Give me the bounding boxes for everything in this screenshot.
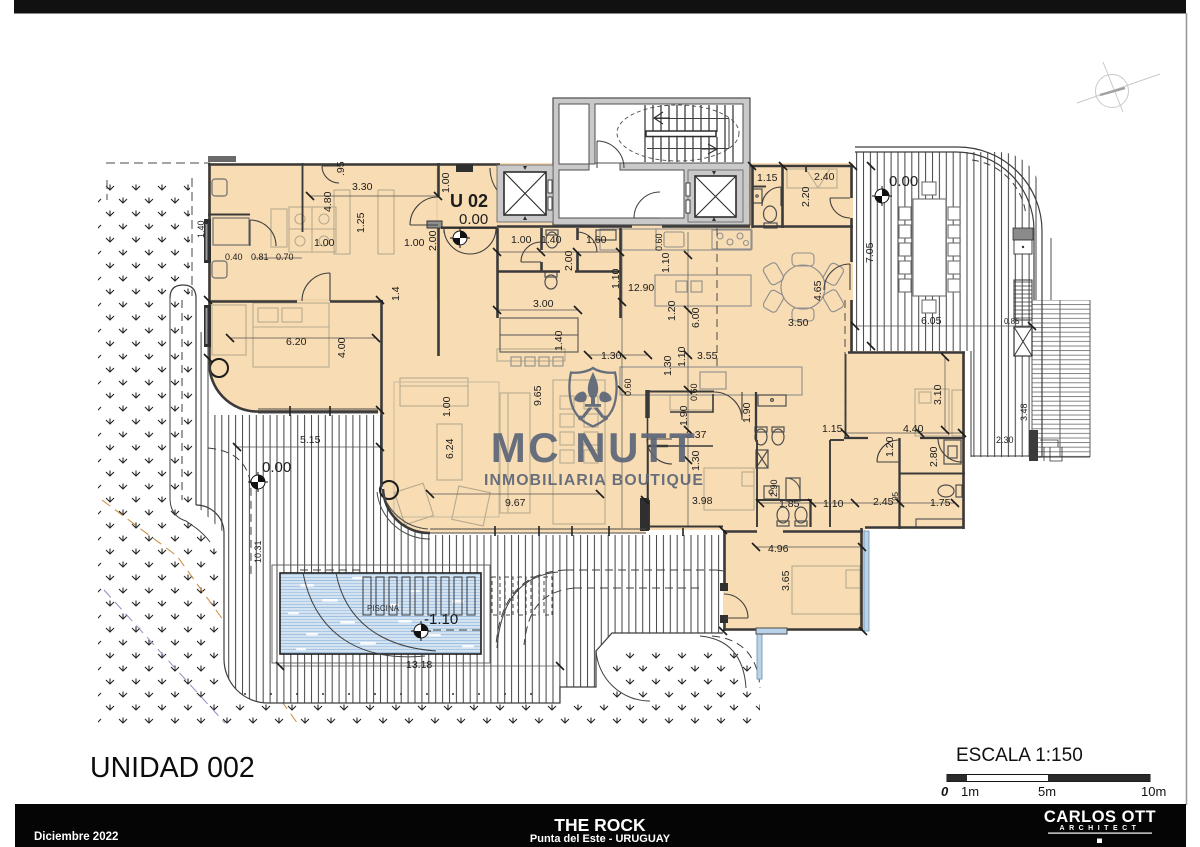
svg-text:4.80: 4.80 xyxy=(322,191,334,212)
svg-text:1.00: 1.00 xyxy=(511,234,532,246)
svg-text:0.00: 0.00 xyxy=(889,173,918,190)
svg-text:2.90: 2.90 xyxy=(769,479,779,497)
svg-text:2.30: 2.30 xyxy=(996,435,1014,445)
svg-text:THE ROCK: THE ROCK xyxy=(554,815,646,835)
svg-text:3.50: 3.50 xyxy=(788,317,809,329)
svg-text:12.90: 12.90 xyxy=(628,282,654,294)
svg-text:0.81: 0.81 xyxy=(251,252,269,262)
svg-text:7.05: 7.05 xyxy=(864,242,876,263)
svg-text:1.40: 1.40 xyxy=(541,234,562,246)
svg-text:1.15: 1.15 xyxy=(822,423,843,435)
svg-text:1.10: 1.10 xyxy=(660,252,672,273)
svg-text:2.80: 2.80 xyxy=(928,446,940,467)
svg-text:0.60: 0.60 xyxy=(654,233,664,251)
svg-text:3.48: 3.48 xyxy=(1019,403,1029,421)
svg-text:1.30: 1.30 xyxy=(662,355,674,376)
svg-text:2.00: 2.00 xyxy=(563,250,575,271)
svg-text:1m: 1m xyxy=(961,784,979,799)
svg-text:Punta del Este - URUGUAY: Punta del Este - URUGUAY xyxy=(530,833,671,845)
svg-text:U 02: U 02 xyxy=(450,191,488,211)
svg-text:6.05: 6.05 xyxy=(921,315,942,327)
svg-text:1.10: 1.10 xyxy=(676,346,688,367)
svg-text:1.40: 1.40 xyxy=(553,330,565,351)
svg-text:1.00: 1.00 xyxy=(440,172,452,193)
svg-text:3.55: 3.55 xyxy=(697,350,718,362)
svg-text:5.15: 5.15 xyxy=(300,434,321,446)
svg-text:1.85: 1.85 xyxy=(779,498,800,510)
svg-text:.95: .95 xyxy=(335,161,347,176)
svg-text:1.20: 1.20 xyxy=(666,300,678,321)
svg-text:1.25: 1.25 xyxy=(355,212,367,233)
svg-text:5m: 5m xyxy=(1038,784,1056,799)
svg-text:3.98: 3.98 xyxy=(692,495,713,507)
svg-text:1.40: 1.40 xyxy=(196,220,206,238)
svg-text:0.70: 0.70 xyxy=(276,252,294,262)
svg-text:1.60: 1.60 xyxy=(586,234,607,246)
svg-text:3.65: 3.65 xyxy=(780,570,792,591)
svg-text:10.31: 10.31 xyxy=(253,540,263,563)
svg-text:10m: 10m xyxy=(1141,784,1166,799)
svg-text:0.00: 0.00 xyxy=(262,459,291,476)
svg-text:2.40: 2.40 xyxy=(814,171,835,183)
svg-text:4.65: 4.65 xyxy=(812,280,824,301)
svg-text:1.4: 1.4 xyxy=(390,286,402,301)
svg-text:9.65: 9.65 xyxy=(532,385,544,406)
svg-text:ESCALA 1:150: ESCALA 1:150 xyxy=(956,745,1083,766)
svg-text:ARCHITECT: ARCHITECT xyxy=(1060,825,1141,832)
svg-text:1.15: 1.15 xyxy=(757,172,778,184)
svg-text:2.00: 2.00 xyxy=(427,230,439,251)
svg-text:6.00: 6.00 xyxy=(690,307,702,328)
svg-text:13.18: 13.18 xyxy=(406,659,432,671)
svg-text:PISCINA: PISCINA xyxy=(367,604,400,613)
svg-text:1.90: 1.90 xyxy=(741,402,753,423)
svg-text:UNIDAD 002: UNIDAD 002 xyxy=(90,752,255,784)
svg-text:4.96: 4.96 xyxy=(768,543,789,555)
svg-text:1.00: 1.00 xyxy=(441,396,453,417)
svg-text:1.20: 1.20 xyxy=(884,436,896,457)
svg-text:0.40: 0.40 xyxy=(225,252,243,262)
svg-text:3.00: 3.00 xyxy=(533,298,554,310)
svg-text:2.20: 2.20 xyxy=(800,186,812,207)
svg-text:1.00: 1.00 xyxy=(314,237,335,249)
svg-text:MC NUTT: MC NUTT xyxy=(491,424,697,471)
svg-text:-1.10: -1.10 xyxy=(424,611,458,628)
svg-text:1.10: 1.10 xyxy=(823,498,844,510)
svg-text:6.20: 6.20 xyxy=(286,336,307,348)
svg-text:0.00: 0.00 xyxy=(459,211,488,228)
svg-text:9.67: 9.67 xyxy=(505,497,526,509)
svg-text:1.75: 1.75 xyxy=(930,497,951,509)
svg-text:0: 0 xyxy=(941,784,949,799)
svg-text:1.90: 1.90 xyxy=(678,405,690,426)
svg-text:3.10: 3.10 xyxy=(932,384,944,405)
svg-text:Diciembre 2022: Diciembre 2022 xyxy=(34,831,118,843)
svg-text:INMOBILIARIA BOUTIQUE: INMOBILIARIA BOUTIQUE xyxy=(484,472,704,489)
svg-text:CARLOS OTT: CARLOS OTT xyxy=(1044,808,1156,826)
svg-text:3.30: 3.30 xyxy=(352,181,373,193)
svg-text:1.10: 1.10 xyxy=(610,268,622,289)
svg-text:1.00: 1.00 xyxy=(404,237,425,249)
svg-text:4.00: 4.00 xyxy=(336,337,348,358)
svg-text:6.24: 6.24 xyxy=(444,438,456,459)
